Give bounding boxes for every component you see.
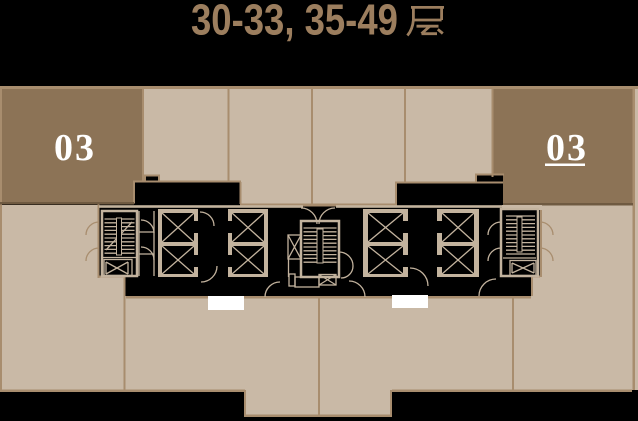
svg-text:03: 03 <box>546 127 588 169</box>
svg-text:03: 03 <box>54 127 96 169</box>
svg-text:30-33, 35-49: 30-33, 35-49 <box>191 0 398 44</box>
